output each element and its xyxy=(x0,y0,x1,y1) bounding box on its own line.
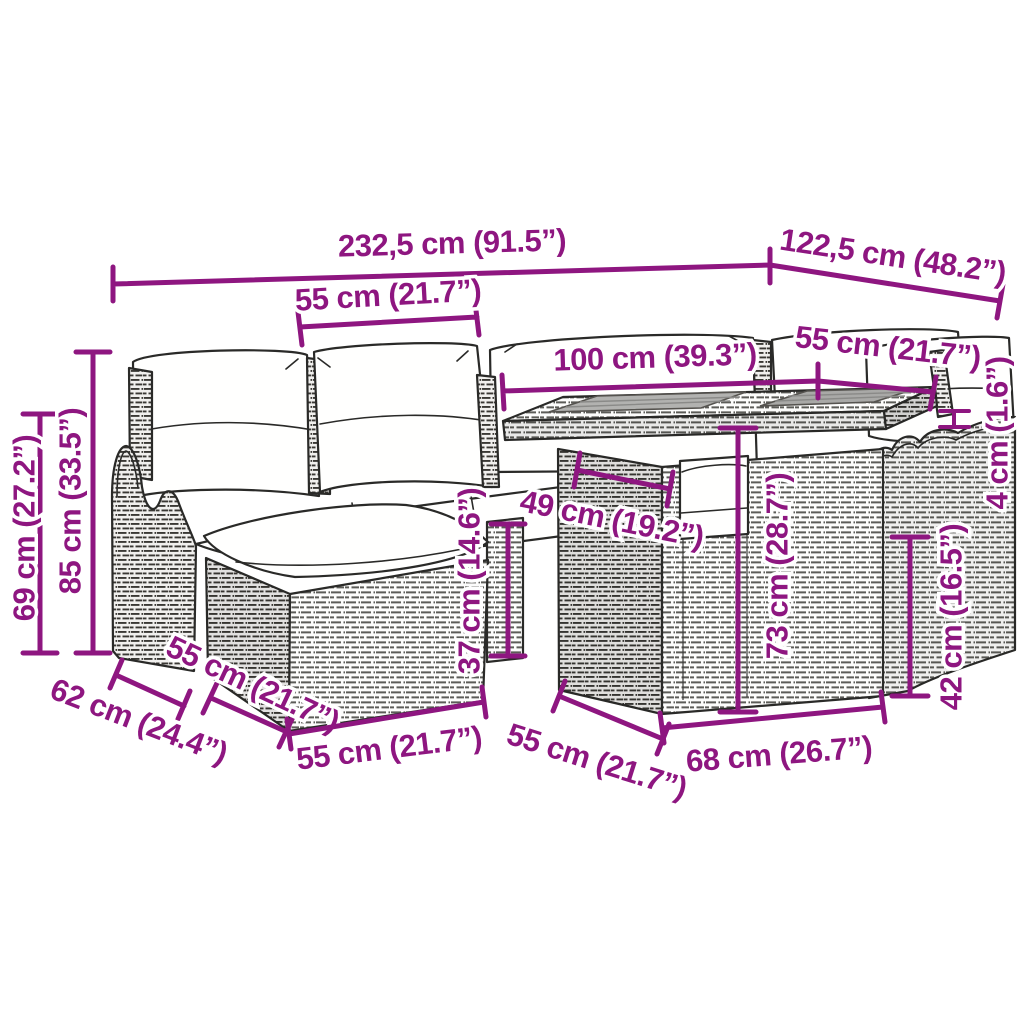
dim-overall-width-label: 232,5 cm (91.5”) xyxy=(338,222,567,263)
furniture-dimension-diagram: 232,5 cm (91.5”) 122,5 cm (48.2”) 55 cm … xyxy=(0,0,1024,1024)
dim-tabletop-thickness-label: 4 cm (1.6”) xyxy=(980,356,1015,509)
dim-armrest-height-label: 69 cm (27.2”) xyxy=(7,435,42,622)
dim-right-seat-height-label: 42 cm (16.5”) xyxy=(934,524,969,711)
dim-back-height-label: 85 cm (33.5”) xyxy=(53,408,88,595)
dim-table-height-label: 73 cm (28.7”) xyxy=(760,473,795,660)
dim-table-length-label: 100 cm (39.3”) xyxy=(553,336,757,377)
corner-sofa-base xyxy=(487,518,523,662)
diagram-canvas: 232,5 cm (91.5”) 122,5 cm (48.2”) 55 cm … xyxy=(0,0,1024,1024)
left-sofa-back-cushions xyxy=(133,343,499,497)
dim-footstool-height-label: 37 cm (14.6”) xyxy=(452,488,487,675)
back-cushion-1 xyxy=(133,350,319,497)
